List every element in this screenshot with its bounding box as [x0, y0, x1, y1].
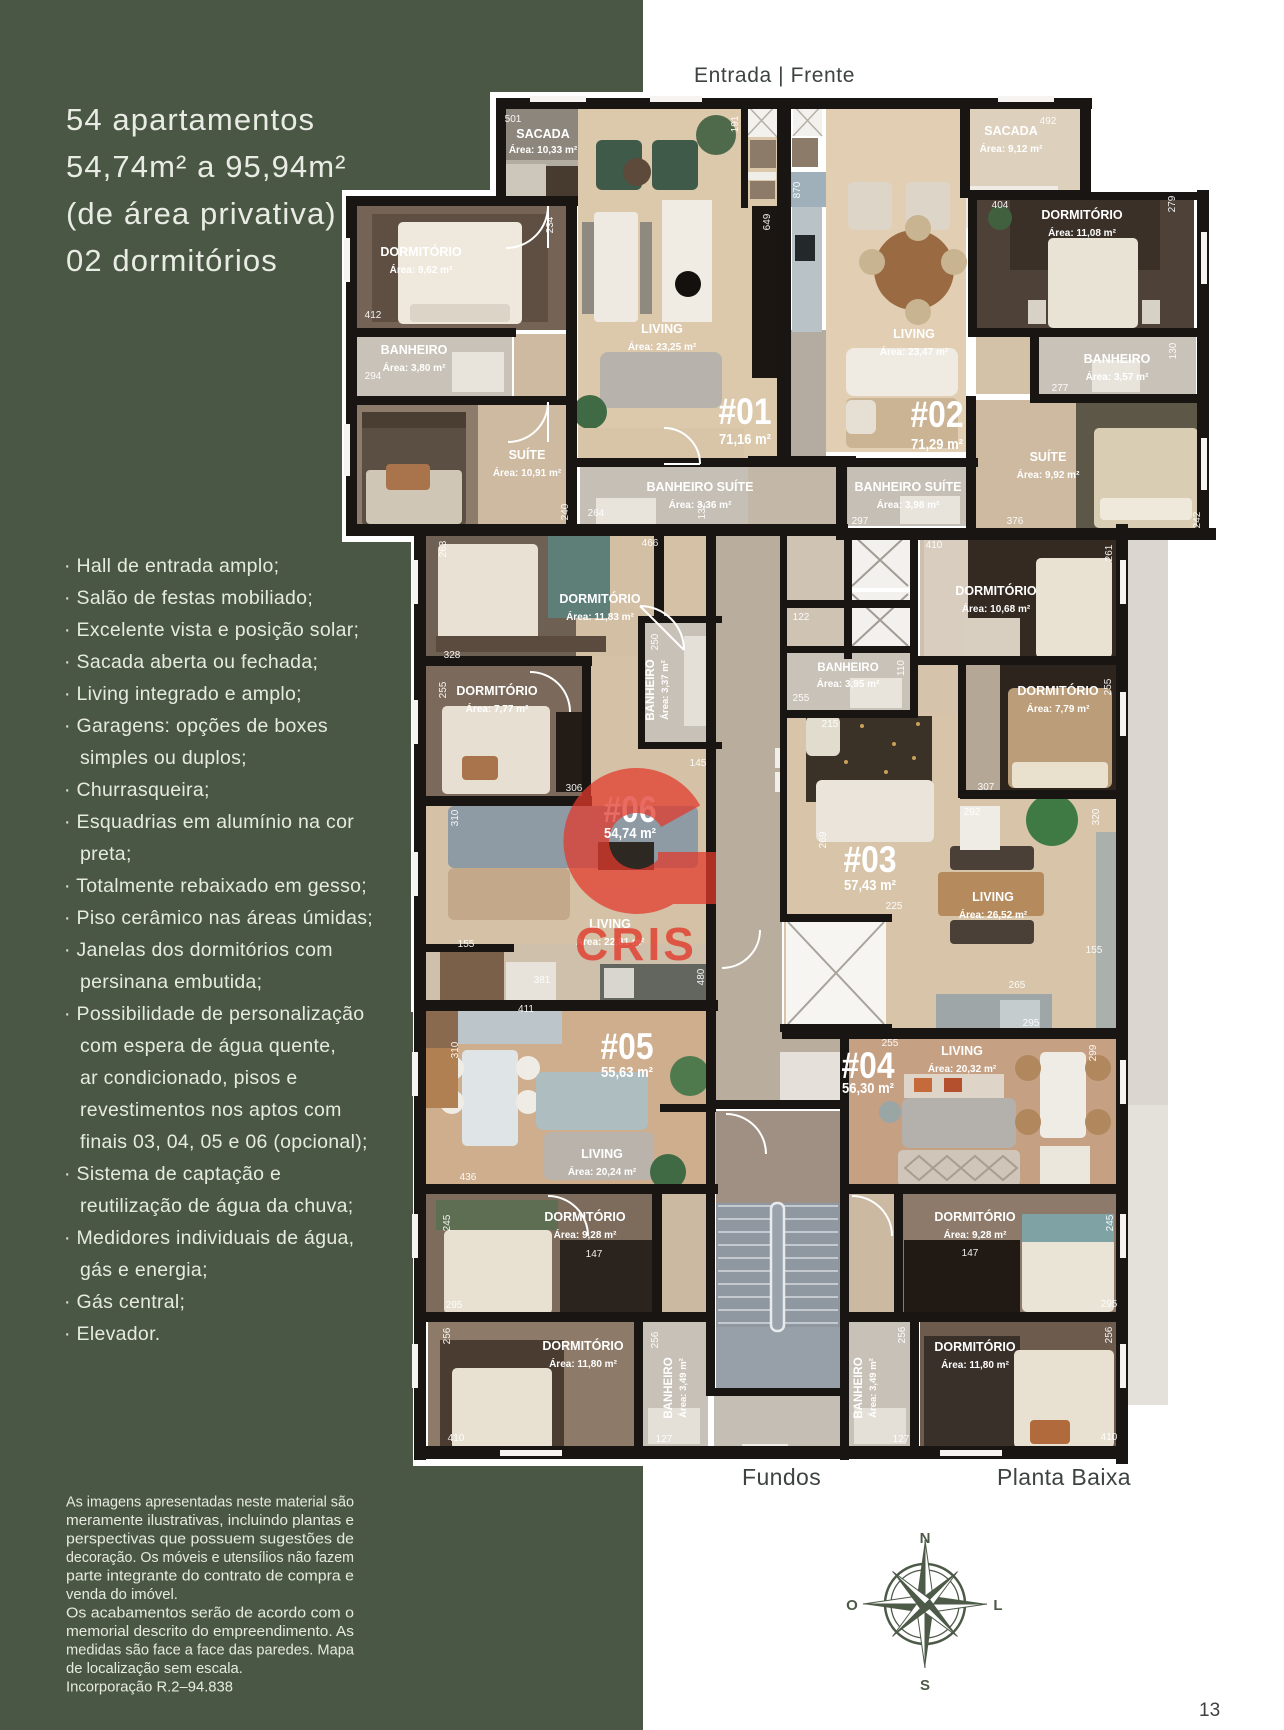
svg-text:279: 279 — [1167, 195, 1178, 212]
svg-text:LIVING: LIVING — [972, 890, 1014, 904]
svg-text:LIVING: LIVING — [581, 1147, 623, 1161]
svg-text:155: 155 — [458, 939, 475, 950]
svg-text:As imagens apresentadas neste: As imagens apresentadas neste material s… — [66, 1495, 354, 1511]
svg-text:269: 269 — [818, 831, 829, 848]
svg-text:264: 264 — [588, 508, 605, 519]
svg-text:N: N — [920, 1530, 931, 1547]
svg-text:310: 310 — [450, 1041, 461, 1058]
svg-text:Área: 9,28 m²: Área: 9,28 m² — [944, 1228, 1007, 1241]
svg-text:255: 255 — [1103, 678, 1114, 695]
svg-text:295: 295 — [446, 1300, 463, 1311]
svg-text:501: 501 — [505, 114, 522, 125]
svg-text:Área: 3,37 m²: Área: 3,37 m² — [660, 660, 671, 720]
svg-text:250: 250 — [650, 633, 661, 650]
svg-text:411: 411 — [518, 1004, 534, 1015]
svg-text:466: 466 — [642, 538, 659, 549]
svg-text:BANHEIRO: BANHEIRO — [381, 343, 448, 357]
svg-text:122: 122 — [793, 612, 810, 623]
svg-text:261: 261 — [1104, 544, 1115, 561]
svg-text:299: 299 — [1088, 1044, 1099, 1061]
svg-text:155: 155 — [1086, 945, 1103, 956]
svg-text:Área: 9,28 m²: Área: 9,28 m² — [554, 1228, 617, 1241]
svg-text:381: 381 — [534, 975, 551, 986]
svg-text:71,29 m²: 71,29 m² — [911, 437, 963, 453]
svg-text:Área: 7,77 m²: Área: 7,77 m² — [466, 702, 529, 715]
svg-text:SUÍTE: SUÍTE — [509, 447, 546, 462]
svg-text:Área: 11,80 m²: Área: 11,80 m² — [941, 1358, 1009, 1371]
svg-text:Área: 9,62 m²: Área: 9,62 m² — [390, 263, 453, 276]
svg-text:BANHEIRO SUÍTE: BANHEIRO SUÍTE — [855, 479, 962, 494]
svg-text:BANHEIRO: BANHEIRO — [663, 1357, 675, 1418]
svg-text:Área: 26,52 m²: Área: 26,52 m² — [959, 908, 1028, 921]
svg-text:255: 255 — [793, 693, 810, 704]
svg-text:DORMITÓRIO: DORMITÓRIO — [456, 683, 538, 698]
svg-text:S: S — [920, 1677, 930, 1694]
svg-text:870: 870 — [792, 181, 803, 198]
svg-text:Área: 23,47 m²: Área: 23,47 m² — [880, 345, 949, 358]
svg-text:376: 376 — [1007, 516, 1024, 527]
svg-text:54,74 m²: 54,74 m² — [604, 826, 656, 842]
svg-text:DORMITÓRIO: DORMITÓRIO — [544, 1209, 626, 1224]
svg-text:292: 292 — [964, 807, 981, 818]
svg-text:256: 256 — [442, 1327, 453, 1344]
svg-text:263: 263 — [438, 540, 449, 557]
svg-text:320: 320 — [1091, 808, 1102, 825]
svg-text:480: 480 — [696, 968, 707, 985]
svg-text:Área: 10,33 m²: Área: 10,33 m² — [509, 143, 578, 156]
svg-text:127: 127 — [656, 1434, 673, 1445]
svg-text:Os acabamentos serão de acordo: Os acabamentos serão de acordo com o — [66, 1606, 354, 1622]
svg-text:DORMITÓRIO: DORMITÓRIO — [542, 1338, 624, 1353]
svg-text:410: 410 — [1101, 1432, 1118, 1443]
svg-text:DORMITÓRIO: DORMITÓRIO — [559, 591, 641, 606]
svg-text:Área: 9,92 m²: Área: 9,92 m² — [1017, 468, 1080, 481]
svg-text:265: 265 — [1009, 980, 1026, 991]
svg-text:410: 410 — [448, 1433, 465, 1444]
svg-text:245: 245 — [442, 1214, 453, 1231]
svg-text:256: 256 — [1104, 1326, 1115, 1343]
svg-text:255: 255 — [882, 1038, 899, 1049]
svg-text:CRIS: CRIS — [575, 918, 697, 970]
svg-text:71,16 m²: 71,16 m² — [719, 432, 771, 448]
svg-text:310: 310 — [450, 809, 461, 826]
svg-text:meramente ilustrativas, inclui: meramente ilustrativas, incluindo planta… — [66, 1513, 354, 1529]
svg-text:#03: #03 — [844, 839, 897, 880]
svg-text:56,30 m²: 56,30 m² — [842, 1081, 894, 1097]
svg-text:Área: 10,91 m²: Área: 10,91 m² — [493, 466, 562, 479]
svg-text:medidas são face a face das pa: medidas são face a face das paredes. Map… — [66, 1643, 355, 1659]
svg-text:BANHEIRO: BANHEIRO — [1084, 352, 1151, 366]
svg-text:255: 255 — [438, 681, 449, 698]
svg-text:436: 436 — [460, 1172, 477, 1183]
svg-text:DORMITÓRIO: DORMITÓRIO — [1041, 207, 1123, 222]
svg-text:DORMITÓRIO: DORMITÓRIO — [1017, 683, 1099, 698]
svg-text:277: 277 — [1052, 383, 1069, 394]
svg-text:O: O — [846, 1597, 858, 1614]
svg-text:DORMITÓRIO: DORMITÓRIO — [380, 244, 462, 259]
svg-text:295: 295 — [1101, 1299, 1118, 1310]
svg-text:328: 328 — [444, 650, 461, 661]
svg-text:Área: 3,57 m²: Área: 3,57 m² — [1086, 370, 1149, 383]
svg-text:234: 234 — [545, 216, 556, 233]
svg-text:Área: 11,83 m²: Área: 11,83 m² — [566, 610, 634, 623]
svg-text:191: 191 — [730, 115, 741, 132]
svg-text:294: 294 — [365, 371, 382, 382]
svg-text:492: 492 — [1040, 116, 1057, 127]
svg-text:#05: #05 — [601, 1026, 654, 1067]
svg-text:55,63 m²: 55,63 m² — [601, 1065, 653, 1081]
svg-text:LIVING: LIVING — [893, 327, 935, 341]
svg-text:Área: 11,08 m²: Área: 11,08 m² — [1048, 226, 1116, 239]
svg-text:57,43 m²: 57,43 m² — [844, 878, 896, 894]
svg-text:127: 127 — [893, 1434, 910, 1445]
svg-text:130: 130 — [1168, 342, 1179, 359]
svg-text:412: 412 — [365, 310, 382, 321]
svg-text:BANHEIRO: BANHEIRO — [853, 1357, 865, 1418]
svg-text:L: L — [993, 1597, 1002, 1614]
svg-text:Área: 20,32 m²: Área: 20,32 m² — [928, 1062, 997, 1075]
svg-text:decoração. Os móveis e utensíl: decoração. Os móveis e utensílios não fa… — [66, 1550, 354, 1566]
svg-text:295: 295 — [1023, 1018, 1040, 1029]
svg-text:147: 147 — [586, 1249, 603, 1260]
svg-text:LIVING: LIVING — [641, 322, 683, 336]
svg-text:240: 240 — [560, 503, 571, 520]
svg-text:147: 147 — [962, 1248, 979, 1259]
svg-text:215: 215 — [822, 719, 839, 730]
svg-text:Incorporação R.2–94.838: Incorporação R.2–94.838 — [66, 1680, 233, 1696]
svg-text:256: 256 — [897, 1326, 908, 1343]
svg-text:110: 110 — [896, 660, 907, 676]
svg-text:DORMITÓRIO: DORMITÓRIO — [955, 583, 1037, 598]
svg-text:245: 245 — [1105, 1214, 1116, 1231]
svg-text:132: 132 — [697, 502, 708, 519]
svg-text:SACADA: SACADA — [516, 127, 569, 141]
svg-text:Área: 23,25 m²: Área: 23,25 m² — [628, 340, 697, 353]
svg-text:Área: 20,24 m²: Área: 20,24 m² — [568, 1165, 637, 1178]
svg-text:venda do imóvel.: venda do imóvel. — [66, 1587, 178, 1603]
svg-text:410: 410 — [926, 540, 943, 551]
svg-text:307: 307 — [978, 782, 995, 793]
svg-text:Área: 3,95 m²: Área: 3,95 m² — [817, 677, 880, 690]
svg-text:242: 242 — [1192, 511, 1203, 528]
svg-text:Área: 3,80 m²: Área: 3,80 m² — [383, 361, 446, 374]
svg-text:404: 404 — [992, 200, 1009, 211]
svg-text:BANHEIRO SUÍTE: BANHEIRO SUÍTE — [647, 479, 754, 494]
svg-text:Área: 11,80 m²: Área: 11,80 m² — [549, 1357, 617, 1370]
svg-text:#02: #02 — [911, 394, 964, 435]
svg-text:Área: 7,79 m²: Área: 7,79 m² — [1027, 702, 1090, 715]
svg-text:Área: 3,49 m²: Área: 3,49 m² — [868, 1358, 879, 1418]
svg-text:SACADA: SACADA — [984, 124, 1037, 138]
svg-text:Área: 3,98 m²: Área: 3,98 m² — [877, 498, 940, 511]
svg-text:DORMITÓRIO: DORMITÓRIO — [934, 1339, 1016, 1354]
svg-text:306: 306 — [566, 783, 583, 794]
svg-text:256: 256 — [650, 1331, 661, 1348]
svg-text:LIVING: LIVING — [941, 1044, 983, 1058]
svg-text:BANHEIRO: BANHEIRO — [817, 662, 878, 674]
svg-text:Área: 3,49 m²: Área: 3,49 m² — [678, 1358, 689, 1418]
svg-text:Área: 10,68 m²: Área: 10,68 m² — [962, 602, 1031, 615]
svg-text:SUÍTE: SUÍTE — [1030, 449, 1067, 464]
svg-text:225: 225 — [886, 901, 903, 912]
svg-text:de localização sem escala.: de localização sem escala. — [66, 1661, 243, 1677]
svg-text:#01: #01 — [719, 391, 772, 432]
svg-text:#04: #04 — [842, 1045, 895, 1086]
svg-text:649: 649 — [762, 213, 773, 230]
svg-text:parte integrante do contrato d: parte integrante do contrato de compra e — [66, 1569, 354, 1585]
svg-text:memorial descrito do empreendi: memorial descrito do empreendimento. As — [66, 1624, 354, 1640]
svg-text:perspectivas que possuem suges: perspectivas que possuem sugestões de — [66, 1532, 354, 1548]
svg-text:Área: 9,12 m²: Área: 9,12 m² — [980, 142, 1043, 155]
svg-text:DORMITÓRIO: DORMITÓRIO — [934, 1209, 1016, 1224]
svg-text:145: 145 — [690, 758, 707, 769]
svg-text:297: 297 — [852, 516, 869, 527]
svg-text:BANHEIRO: BANHEIRO — [645, 659, 657, 720]
